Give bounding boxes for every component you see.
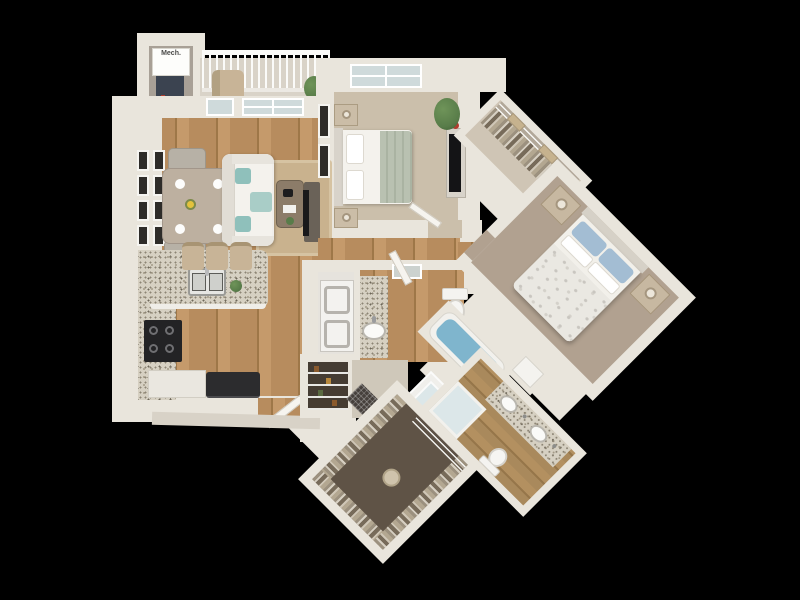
lamp [342, 213, 351, 222]
pantry-item [332, 400, 337, 406]
pantry-shelves [308, 362, 348, 410]
window-pane [387, 77, 420, 86]
tv-on-dresser [449, 134, 461, 192]
kitchen-cabinet [148, 370, 206, 398]
pantry-item [314, 366, 319, 372]
picture-frame [153, 150, 165, 171]
window-pane [352, 77, 385, 86]
picture-frame [137, 175, 149, 196]
bar-stool [230, 242, 252, 270]
sofa-back [222, 154, 234, 246]
burner [165, 326, 174, 335]
window-pane [274, 108, 302, 114]
headboard [334, 128, 343, 206]
hall-bath-sink [362, 322, 386, 340]
living-window [242, 98, 304, 116]
decor-item [283, 189, 293, 197]
throw-pillow [235, 216, 251, 232]
window-pane [387, 66, 420, 75]
burner [149, 344, 158, 353]
mech-label: Mech. [161, 50, 181, 57]
throw-pillow [235, 168, 251, 184]
burner [149, 326, 158, 335]
burner [165, 344, 174, 353]
throw-blanket [250, 192, 272, 212]
washer-dryer-stack [320, 280, 354, 352]
water-heater: Mech. [152, 48, 190, 76]
decor-book [283, 205, 296, 213]
flower-centerpiece [185, 199, 196, 210]
kitchen-sink [188, 268, 226, 296]
window-pane [244, 108, 272, 114]
decor-plant [286, 217, 294, 225]
pantry-item [318, 390, 323, 396]
pillow [346, 134, 364, 164]
lamp [342, 110, 351, 119]
hall-bath-faucet [372, 316, 376, 323]
bedroom1-art [318, 104, 330, 138]
dryer-door [324, 320, 350, 348]
bedroom1-art [318, 144, 330, 178]
bar-stool [182, 242, 204, 270]
sink-basin [209, 273, 223, 291]
balcony-door [206, 98, 234, 116]
window-pane [274, 100, 302, 106]
window-pane [352, 66, 385, 75]
bedroom1-window [350, 64, 422, 88]
bath-left-wall [302, 260, 318, 366]
refrigerator [206, 372, 260, 398]
stove [144, 320, 182, 362]
sofa-armrest [232, 154, 274, 164]
plate [175, 179, 185, 189]
window-pane [244, 100, 272, 106]
bed-blanket [380, 131, 412, 203]
sink-basin [192, 273, 206, 291]
pillow [346, 170, 364, 200]
floorplan-3d-render: Mech. [0, 0, 800, 600]
sofa [222, 154, 274, 246]
picture-frame [137, 150, 149, 171]
coffee-table [276, 180, 304, 228]
nightstand [334, 208, 358, 228]
washer-door [324, 286, 350, 314]
bedroom1-plant [434, 98, 460, 130]
gallery-wall [137, 150, 165, 246]
picture-frame [137, 225, 149, 246]
pantry-item [326, 378, 331, 384]
island-plant [230, 280, 242, 292]
bar-stool [206, 242, 228, 270]
bedroom1-bed [334, 128, 414, 206]
plate [175, 224, 185, 234]
island-base [150, 304, 266, 309]
tv-screen [303, 190, 309, 236]
picture-frame [137, 200, 149, 221]
nightstand [334, 104, 358, 126]
